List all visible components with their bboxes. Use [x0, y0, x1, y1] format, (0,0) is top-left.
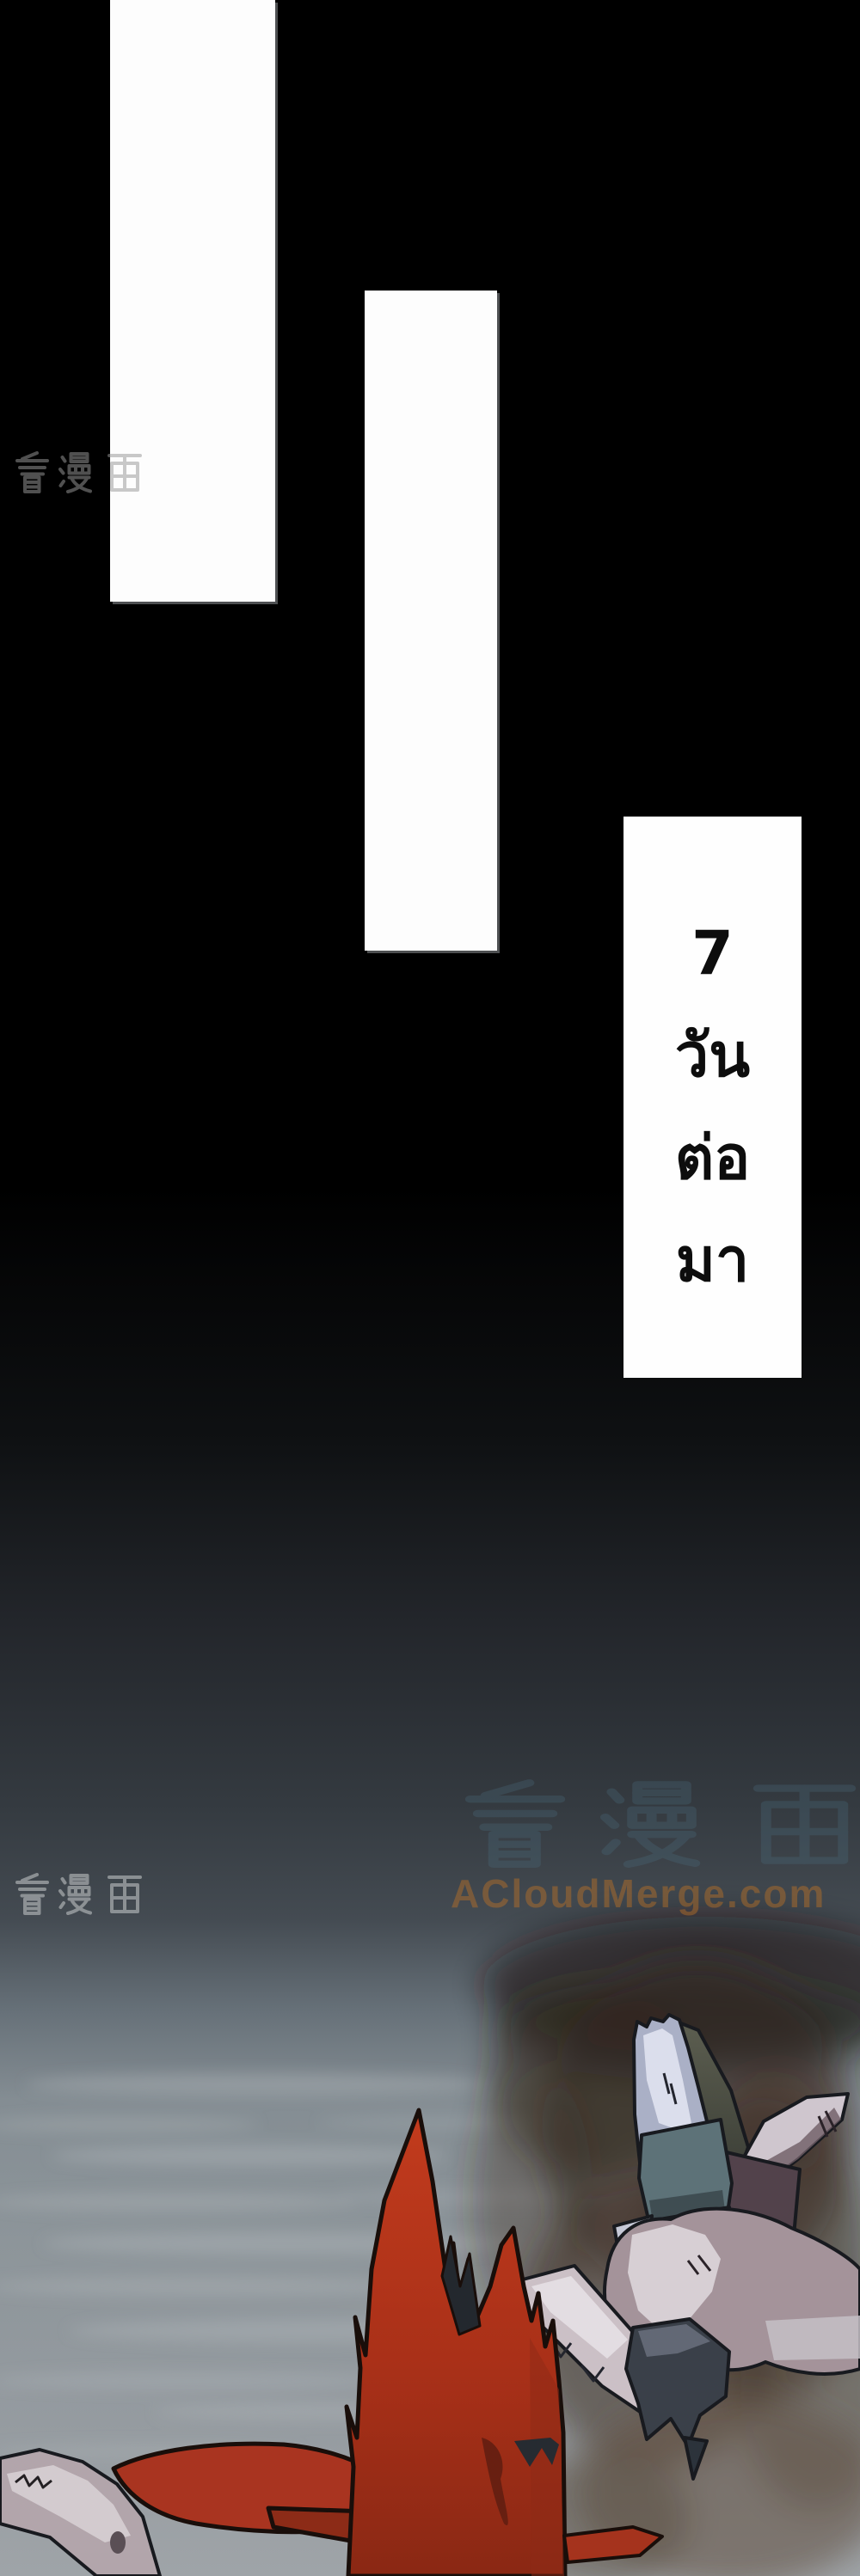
manga-page: 7 วัน ต่อ มา ACloudMerge.com [0, 0, 860, 2576]
caption-line-2: วัน [623, 1005, 802, 1107]
cjk-glyph-man-icon [57, 450, 100, 493]
cjk-outline-glyph-icon [740, 1778, 860, 1868]
blank-panel-1 [110, 0, 275, 602]
cjk-glyph-man-icon [57, 1872, 100, 1915]
caption-line-4: มา [623, 1209, 802, 1312]
cjk-glyph-kan-icon [10, 450, 53, 493]
cjk-glyph-hua-icon [103, 1872, 146, 1915]
site-watermark-top [10, 450, 146, 493]
caption-line-3: ต่อ [623, 1107, 802, 1209]
site-watermark-bottom [10, 1872, 146, 1915]
cjk-glyph-hua-icon [103, 450, 146, 493]
caption-box-time-skip: 7 วัน ต่อ มา [623, 817, 802, 1378]
caption-line-1: 7 [623, 903, 802, 1005]
brand-url-watermark: ACloudMerge.com [451, 1870, 826, 1917]
cjk-outline-glyph-icon [595, 1778, 723, 1868]
outline-cjk-watermark [450, 1778, 860, 1868]
blank-panel-2 [365, 291, 497, 951]
cjk-outline-glyph-icon [450, 1778, 578, 1868]
cjk-glyph-kan-icon [10, 1872, 53, 1915]
